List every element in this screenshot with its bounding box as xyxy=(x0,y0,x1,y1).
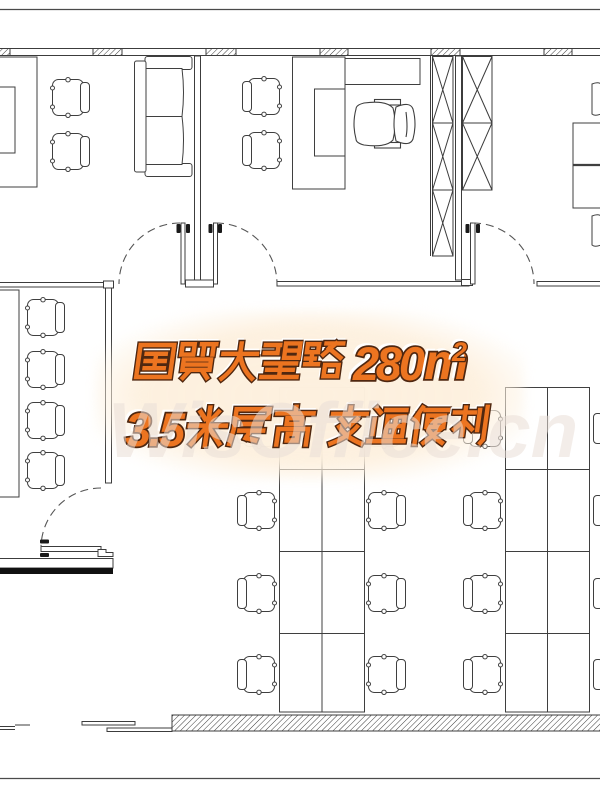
svg-text:2: 2 xyxy=(451,337,467,367)
svg-text:280: 280 xyxy=(352,337,425,390)
